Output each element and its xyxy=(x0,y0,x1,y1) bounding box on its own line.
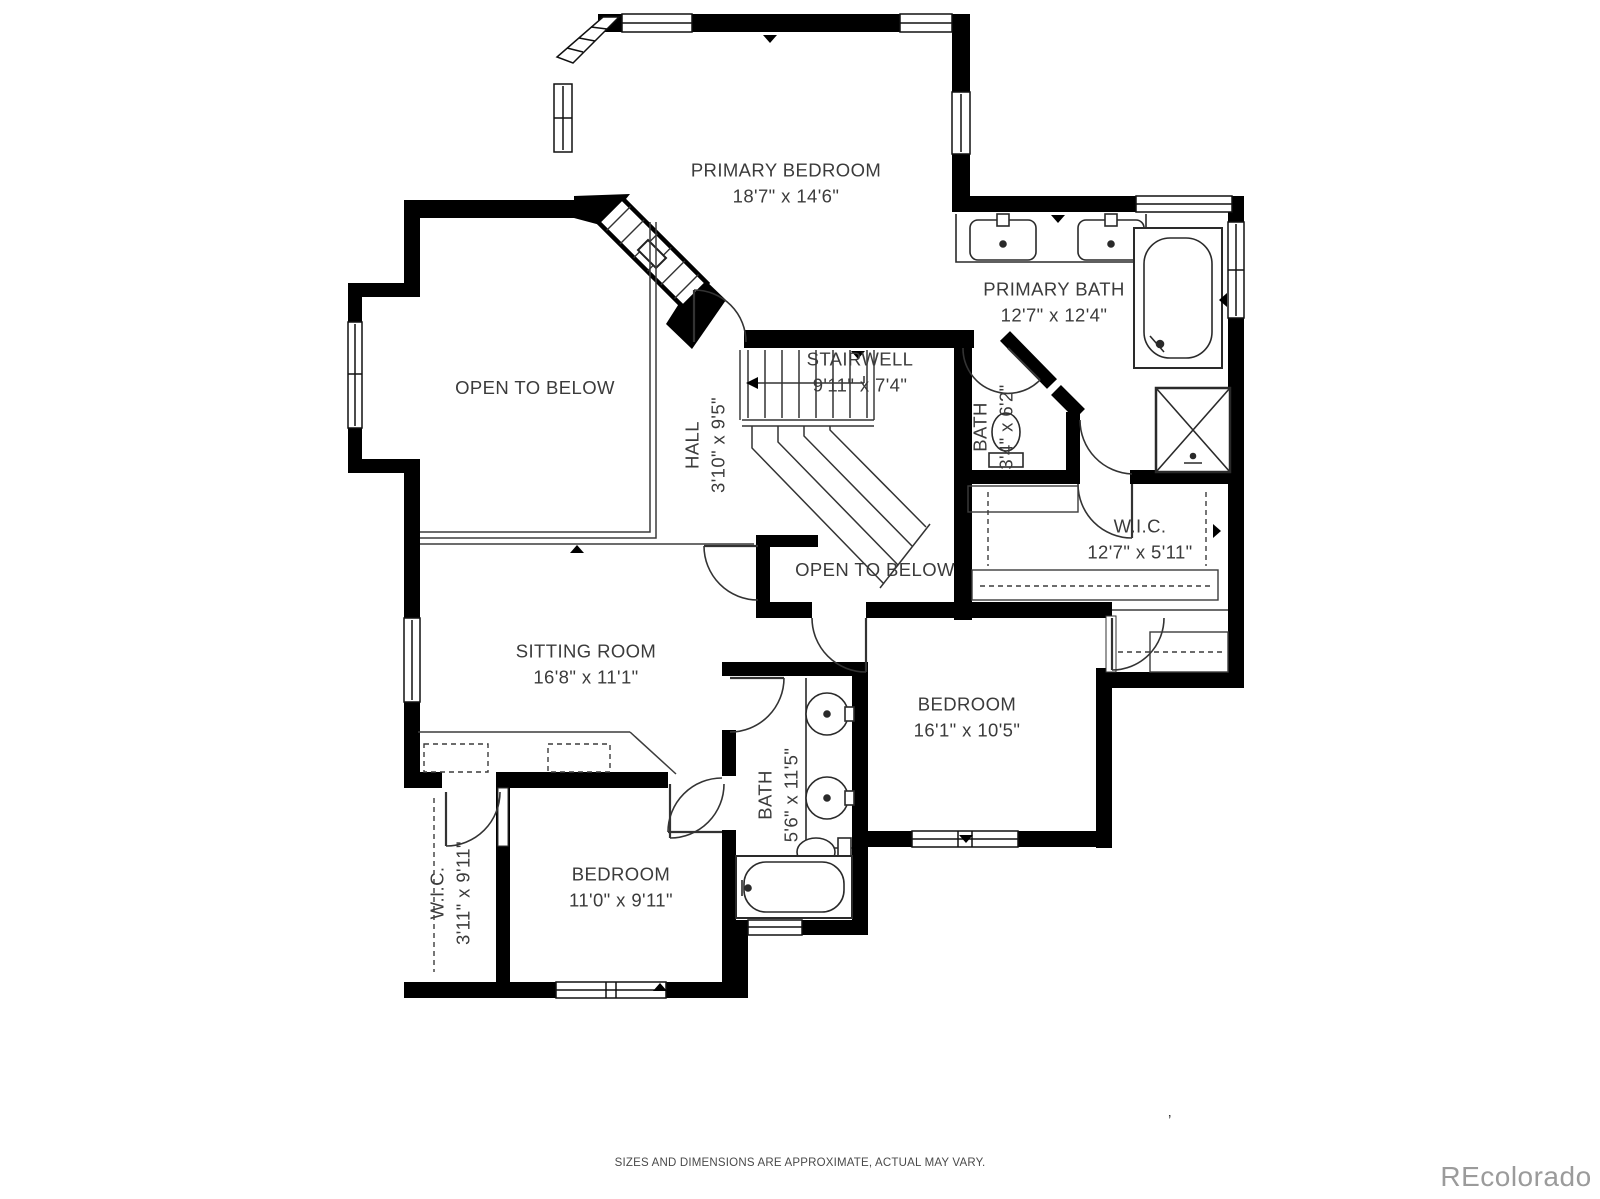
room-label-hall: HALL 3'10" x 9'5" xyxy=(680,397,733,493)
window xyxy=(1228,222,1244,318)
room-dims: 12'7" x 5'11" xyxy=(1087,540,1192,566)
room-label-bedroom-left: BEDROOM 11'0" x 9'11" xyxy=(569,862,673,915)
bay-window xyxy=(557,17,619,63)
room-name: HALL xyxy=(680,397,706,493)
sink xyxy=(970,214,1036,260)
door-arc xyxy=(1080,420,1132,474)
room-label-bedroom-right: BEDROOM 16'1" x 10'5" xyxy=(914,692,1021,745)
door-arc xyxy=(670,784,724,838)
window xyxy=(554,84,572,152)
window xyxy=(348,322,362,428)
room-name: OPEN TO BELOW xyxy=(455,375,615,401)
door-arc xyxy=(704,546,758,600)
window xyxy=(556,982,666,998)
disclaimer-text: SIZES AND DIMENSIONS ARE APPROXIMATE, AC… xyxy=(615,1157,986,1169)
room-label-primary-bath: PRIMARY BATH 12'7" x 12'4" xyxy=(983,277,1125,330)
bathtub xyxy=(1134,228,1222,368)
room-name: OPEN TO BELOW xyxy=(795,557,955,583)
room-name: W.I.C. xyxy=(425,841,451,945)
room-name: SITTING ROOM xyxy=(516,639,656,665)
window xyxy=(748,920,802,935)
window xyxy=(900,14,952,32)
room-dims: 5'6" x 11'5" xyxy=(779,748,805,843)
room-dims: 3'4" x 6'2" xyxy=(994,384,1020,469)
recolorado-watermark: REcolorado xyxy=(1440,1161,1591,1193)
door-arc xyxy=(446,788,508,846)
room-name: BEDROOM xyxy=(914,692,1021,718)
room-name: BEDROOM xyxy=(569,862,673,888)
room-label-bath-toilet: BATH 3'4" x 6'2" xyxy=(968,384,1021,469)
room-name: PRIMARY BATH xyxy=(983,277,1125,303)
door-arc xyxy=(1106,616,1164,672)
room-dims: 18'7" x 14'6" xyxy=(691,184,881,210)
room-dims: 16'8" x 11'1" xyxy=(516,665,656,691)
floor-plan-page: PRIMARY BEDROOM 18'7" x 14'6" PRIMARY BA… xyxy=(0,0,1600,1199)
room-label-open-to-below-center: OPEN TO BELOW xyxy=(795,557,955,583)
bathtub xyxy=(736,856,852,918)
fireplace xyxy=(598,198,707,307)
stray-mark: ’ xyxy=(1168,1112,1171,1129)
window xyxy=(1136,196,1232,212)
window xyxy=(952,92,970,154)
room-label-stairwell: STAIRWELL 9'11" x 7'4" xyxy=(807,347,914,400)
room-label-open-to-below-left: OPEN TO BELOW xyxy=(455,375,615,401)
room-name: STAIRWELL xyxy=(807,347,914,373)
room-label-bath-jack-and-jill: BATH 5'6" x 11'5" xyxy=(753,748,806,843)
room-dims: 11'0" x 9'11" xyxy=(569,888,673,914)
door-arc xyxy=(668,778,722,832)
room-name: BATH xyxy=(753,748,779,843)
room-dims: 9'11" x 7'4" xyxy=(807,373,914,399)
room-name: PRIMARY BEDROOM xyxy=(691,158,881,184)
room-label-sitting-room: SITTING ROOM 16'8" x 11'1" xyxy=(516,639,656,692)
window xyxy=(404,618,420,702)
room-label-wic-left: W.I.C. 3'11" x 9'11" xyxy=(425,841,478,945)
room-label-wic-primary: W.I.C. 12'7" x 5'11" xyxy=(1087,514,1192,567)
room-name: W.I.C. xyxy=(1087,514,1192,540)
shower xyxy=(1156,388,1230,472)
room-name: BATH xyxy=(968,384,994,469)
sink xyxy=(806,777,854,819)
room-dims: 3'11" x 9'11" xyxy=(451,841,477,945)
room-dims: 16'1" x 10'5" xyxy=(914,718,1021,744)
room-label-primary-bedroom: PRIMARY BEDROOM 18'7" x 14'6" xyxy=(691,158,881,211)
room-dims: 12'7" x 12'4" xyxy=(983,303,1125,329)
room-dims: 3'10" x 9'5" xyxy=(706,397,732,493)
door-arc xyxy=(730,678,784,732)
sink xyxy=(806,693,854,735)
window xyxy=(622,14,692,32)
